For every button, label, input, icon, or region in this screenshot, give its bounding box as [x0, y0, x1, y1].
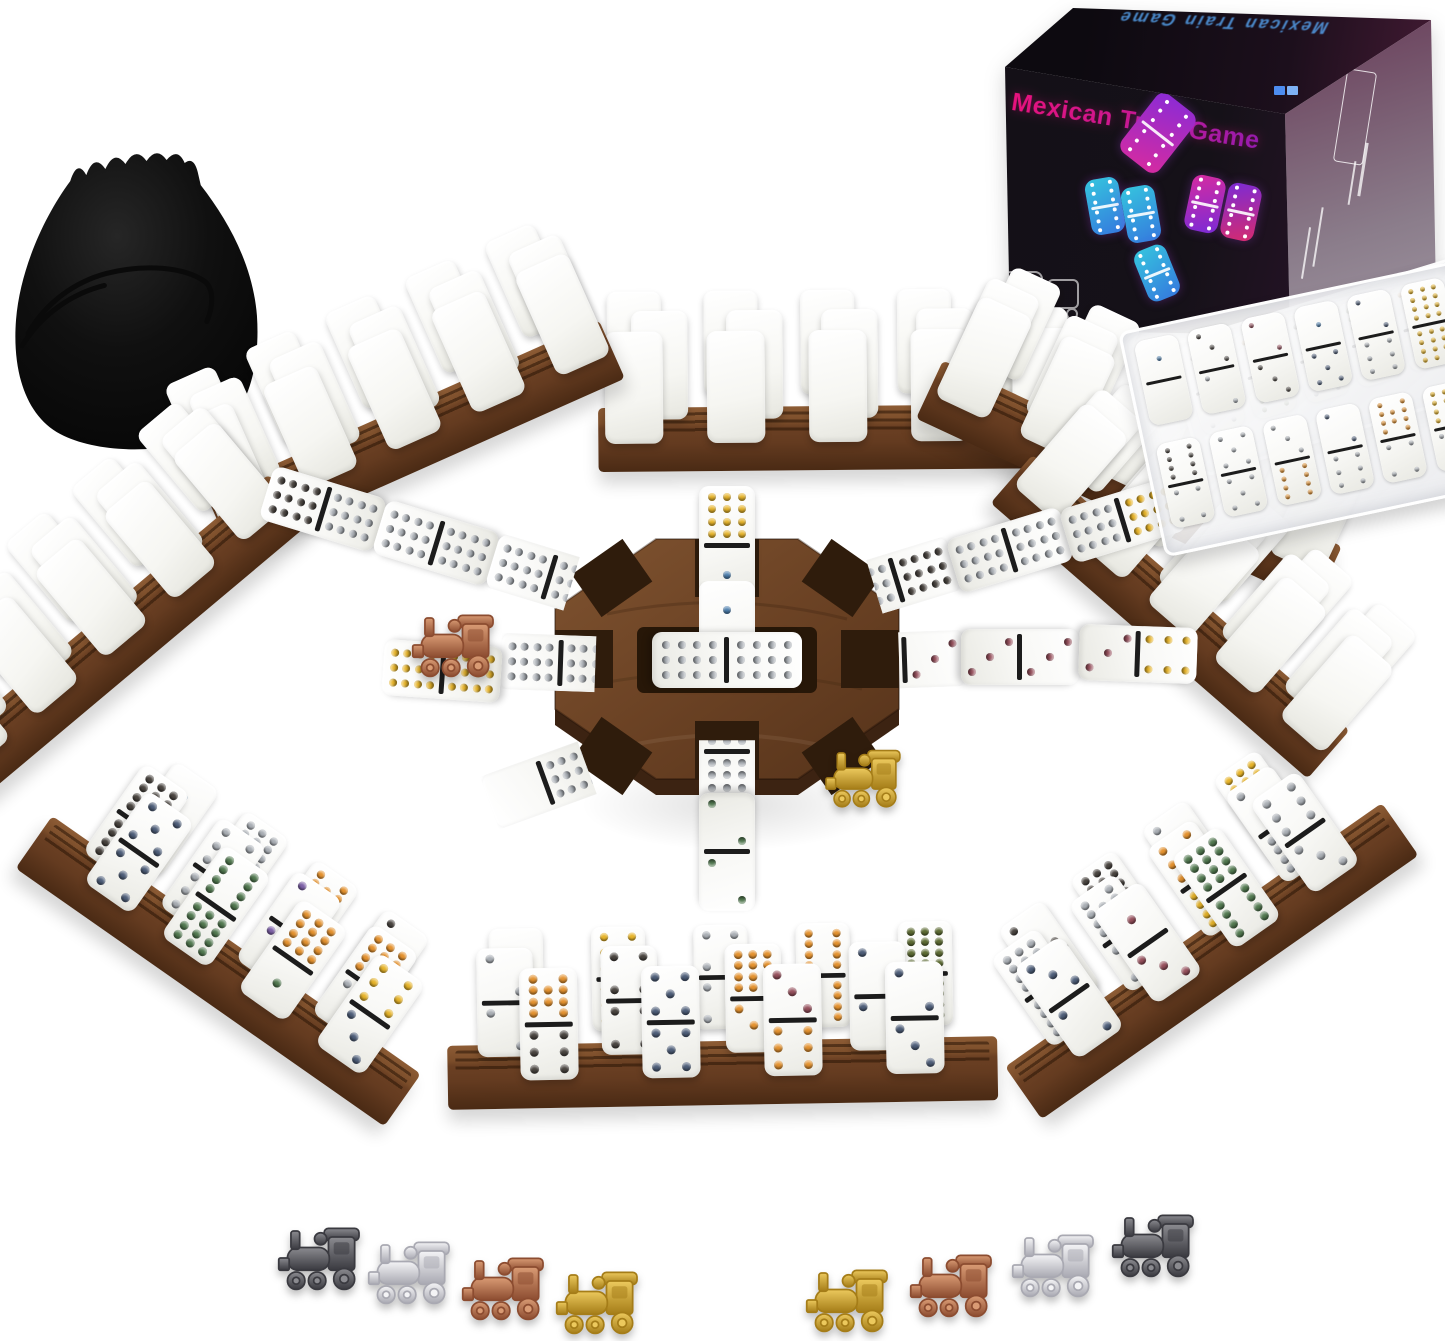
pip [784, 656, 792, 664]
domino-half [1302, 344, 1353, 390]
pip [1390, 409, 1396, 415]
domino-half [886, 1021, 945, 1071]
pip [1104, 649, 1112, 657]
pip [1129, 512, 1139, 522]
pip [730, 930, 739, 939]
pip [1214, 190, 1219, 195]
pip [1311, 354, 1317, 360]
pip [774, 1043, 783, 1052]
pip [662, 656, 670, 664]
pip [1298, 447, 1304, 453]
pip [1399, 398, 1405, 404]
pip [1143, 188, 1148, 193]
domino-half [1141, 626, 1195, 684]
pip [650, 972, 659, 981]
pip [1077, 543, 1087, 553]
pip [1412, 306, 1418, 312]
pip [1047, 968, 1060, 981]
pip [146, 800, 159, 813]
chain-upleft-mid [371, 499, 500, 587]
pip [555, 575, 565, 585]
pip [680, 972, 689, 981]
domino-5-5 [1208, 425, 1269, 518]
pip [528, 974, 537, 983]
pip [508, 672, 516, 680]
side-barcode-label [1333, 68, 1377, 166]
pip [773, 1026, 782, 1035]
pip [858, 948, 867, 957]
pip [768, 656, 776, 664]
pip [1157, 108, 1163, 114]
pip [1232, 397, 1238, 403]
pip [560, 1047, 569, 1056]
pip [1325, 364, 1331, 370]
pip [1249, 474, 1255, 480]
pip [926, 565, 936, 575]
pip [303, 515, 313, 525]
pip [340, 511, 350, 521]
pip [678, 656, 686, 664]
pip [1352, 435, 1358, 441]
pip [753, 671, 761, 679]
pip [1195, 334, 1201, 340]
pip [894, 968, 903, 977]
pip [544, 997, 553, 1006]
pip [738, 759, 746, 767]
pip [1315, 849, 1328, 862]
pip [300, 483, 310, 493]
pip [709, 671, 717, 679]
pip [1192, 469, 1198, 475]
pip [1333, 456, 1339, 462]
pip [559, 985, 568, 994]
domino-half [1125, 213, 1163, 243]
pip [458, 531, 468, 541]
pip [1182, 637, 1190, 645]
pip [1197, 186, 1202, 191]
pip [1091, 508, 1101, 518]
pip [1417, 331, 1423, 337]
pip [119, 892, 132, 905]
domino-divider [647, 1019, 695, 1025]
pip [708, 505, 716, 513]
pip [738, 505, 746, 513]
pip [1161, 262, 1166, 267]
pip [1391, 471, 1397, 477]
pip [381, 538, 391, 548]
pip [486, 1009, 495, 1018]
pip [803, 1004, 812, 1013]
pip [545, 658, 553, 666]
pip [1277, 344, 1283, 350]
pip [385, 918, 397, 930]
product-photo-scene: Mexican Train Game Mexican Train Game [0, 0, 1445, 1341]
pip [1191, 213, 1196, 218]
hub-center-domino [652, 632, 802, 688]
pip [220, 826, 232, 838]
pip [1338, 482, 1344, 488]
pip [1151, 825, 1163, 837]
train-marker-copper-on-chain [404, 606, 500, 684]
pip [1046, 517, 1056, 527]
domino-3-2 [1186, 322, 1247, 415]
domino-half [641, 969, 700, 1019]
domino-1-0 [1133, 333, 1194, 426]
pip [1240, 432, 1246, 438]
pip [1283, 485, 1289, 491]
pip [681, 1006, 690, 1015]
pip [446, 527, 456, 537]
pip [1169, 132, 1175, 138]
domino-back [429, 289, 528, 415]
pip [1144, 269, 1149, 274]
pip [481, 538, 491, 548]
pip [1421, 295, 1427, 301]
pip [911, 1041, 920, 1050]
pip [738, 493, 746, 501]
pip [753, 656, 761, 664]
pip [1337, 855, 1350, 868]
domino-3-8 [1261, 413, 1322, 506]
pip [117, 869, 130, 882]
pip [544, 986, 553, 995]
pip [1316, 322, 1322, 328]
domino-half [1377, 435, 1428, 481]
pip [1098, 228, 1103, 233]
pip [294, 917, 307, 930]
pip [185, 909, 198, 922]
pip [336, 525, 346, 535]
pip [978, 538, 988, 548]
box-art-domino [1083, 175, 1126, 236]
pip [919, 582, 929, 592]
pip [477, 552, 487, 562]
pip [914, 568, 924, 578]
pip [1086, 663, 1094, 671]
pip [1364, 342, 1370, 348]
pip [268, 504, 278, 514]
pip [1408, 440, 1414, 446]
pip [514, 548, 524, 558]
pip [1148, 279, 1153, 284]
pip [358, 990, 371, 1003]
pip [1207, 226, 1212, 231]
pip [1223, 355, 1229, 361]
pip [1023, 524, 1033, 534]
pip [678, 641, 686, 649]
pip [1421, 348, 1427, 354]
pip [510, 562, 520, 572]
pip [1168, 280, 1173, 285]
pip [748, 950, 757, 959]
pip [1212, 198, 1217, 203]
pip [1280, 826, 1293, 839]
pip [738, 837, 746, 845]
pip [1216, 181, 1221, 186]
pip [877, 564, 887, 574]
pip [1369, 368, 1375, 374]
pip [522, 565, 532, 575]
pip [784, 671, 792, 679]
domino-half [1143, 378, 1194, 424]
pip [1292, 844, 1305, 857]
pip [1430, 392, 1436, 398]
pip [1250, 198, 1255, 203]
pip [537, 555, 547, 565]
pip [494, 572, 504, 582]
pip [392, 993, 405, 1006]
pip [567, 659, 575, 667]
pip [465, 548, 475, 558]
pip [1115, 224, 1120, 229]
pip [1226, 479, 1232, 485]
pip [521, 643, 529, 651]
pip [1423, 357, 1429, 363]
pip [922, 551, 932, 561]
pip [885, 592, 895, 602]
pip [913, 670, 921, 678]
pip [580, 645, 588, 653]
pip [763, 950, 772, 959]
pip [389, 678, 398, 687]
pip [1114, 216, 1119, 221]
pip [1173, 490, 1179, 496]
pip [217, 863, 230, 876]
rack-bottom-right [961, 741, 1418, 1120]
pip [1146, 636, 1154, 644]
pip [693, 656, 701, 664]
train-marker-gold-right [798, 1261, 894, 1339]
pip [975, 569, 985, 579]
pip [1270, 426, 1276, 432]
pip [1134, 236, 1139, 241]
pip [1234, 927, 1247, 940]
pip [1240, 489, 1246, 495]
domino-divider [769, 1017, 817, 1023]
domino-half [1165, 481, 1216, 527]
pip [1008, 925, 1020, 937]
pip [1389, 350, 1395, 356]
pip [348, 1031, 361, 1044]
domino-half [1218, 469, 1269, 515]
pip [1158, 255, 1163, 260]
pip [723, 606, 731, 614]
pip [662, 641, 670, 649]
pip [114, 846, 127, 859]
pip [1157, 959, 1170, 972]
pip [291, 511, 301, 521]
pip [277, 476, 287, 486]
pip [1135, 954, 1148, 967]
pip [723, 759, 731, 767]
pip [530, 1065, 539, 1074]
domino-half [657, 632, 723, 688]
pip [1161, 143, 1167, 149]
domino-half [1400, 279, 1445, 325]
pip [935, 937, 944, 946]
pip [1164, 448, 1170, 454]
pip [933, 547, 943, 557]
pip [1235, 791, 1247, 803]
pip [832, 929, 841, 938]
pip [319, 935, 332, 948]
pip [533, 658, 541, 666]
pip [1419, 339, 1425, 345]
pip [413, 517, 423, 527]
pip [1243, 234, 1248, 239]
pip [1165, 272, 1170, 277]
pip [1217, 437, 1223, 443]
pip [788, 987, 797, 996]
domino-2-6 [1315, 402, 1376, 495]
pip [1279, 468, 1285, 474]
pip [768, 671, 776, 679]
pip [986, 653, 994, 661]
pip [1056, 1009, 1069, 1022]
pip [345, 497, 355, 507]
pip [1154, 247, 1159, 252]
pip [151, 846, 164, 859]
domino-half [763, 967, 822, 1017]
pip [472, 566, 482, 576]
pip [1166, 457, 1172, 463]
pip [352, 514, 362, 524]
pip [651, 1028, 660, 1037]
pip [1005, 638, 1013, 646]
pip [1146, 205, 1151, 210]
pip [244, 843, 256, 855]
pip [1227, 221, 1232, 226]
pip [1430, 337, 1436, 343]
pip [1435, 418, 1441, 424]
pip [1096, 219, 1101, 224]
pip [306, 926, 319, 939]
pip [1125, 913, 1138, 926]
pip [1128, 199, 1133, 204]
pip [1032, 552, 1042, 562]
pip [772, 970, 781, 979]
side-print-line [1348, 161, 1357, 205]
pip [804, 1060, 813, 1069]
pip [1151, 232, 1156, 237]
pip [551, 589, 561, 599]
pip [708, 784, 716, 792]
pip [1187, 443, 1193, 449]
pip [1284, 436, 1290, 442]
pip [453, 545, 463, 555]
domino-divider [704, 750, 750, 755]
domino-half [699, 856, 755, 908]
pip [1170, 474, 1176, 480]
pip [967, 542, 977, 552]
pip [305, 954, 318, 967]
pip [329, 507, 339, 517]
pip [1439, 326, 1445, 332]
domino-12-12 [1399, 277, 1445, 370]
pip [567, 674, 575, 682]
pip [737, 671, 745, 679]
pip [1164, 99, 1170, 105]
pip [600, 933, 609, 942]
pip [1141, 128, 1147, 134]
pip [1270, 812, 1283, 825]
pip [1225, 230, 1230, 235]
pip [1111, 532, 1121, 542]
pip [708, 518, 716, 526]
pip [1027, 668, 1035, 676]
pip [1046, 653, 1054, 661]
pip [1386, 445, 1392, 451]
pip [1434, 355, 1440, 361]
pip [573, 766, 583, 776]
pip [1190, 461, 1196, 467]
pip [533, 644, 541, 652]
pip [578, 779, 588, 789]
pip [1235, 186, 1240, 191]
pip [529, 1009, 538, 1018]
pip [1171, 287, 1176, 292]
pip [1441, 389, 1445, 395]
pip [1035, 521, 1045, 531]
domino-half [1430, 424, 1445, 470]
pip [1305, 809, 1318, 822]
domino-1-5 [1293, 299, 1354, 392]
pip [1145, 522, 1155, 532]
pip [401, 514, 411, 524]
domino-half [885, 964, 944, 1014]
pip [149, 823, 162, 836]
pip [1428, 329, 1434, 335]
pip [1069, 974, 1082, 987]
pip [666, 989, 675, 998]
pip [127, 829, 140, 842]
pip [628, 932, 637, 941]
pip [204, 882, 217, 895]
pip [1193, 205, 1198, 210]
pip [907, 949, 916, 958]
train-marker-gunmetal-right [1104, 1206, 1200, 1284]
domino-10-6 [519, 968, 579, 1081]
pip [738, 518, 746, 526]
pip [1183, 114, 1189, 120]
pip [377, 962, 390, 975]
pip [971, 555, 981, 565]
pip [1012, 528, 1022, 538]
pip [1133, 526, 1143, 536]
domino-half [699, 585, 755, 637]
pip [682, 1062, 691, 1071]
pip [1419, 287, 1425, 293]
pip [983, 552, 993, 562]
pip [1380, 420, 1386, 426]
pip [1201, 881, 1214, 894]
pip [350, 1053, 363, 1066]
pip [1201, 511, 1207, 517]
domino-half [1082, 624, 1136, 682]
pip [1249, 323, 1255, 329]
pip [1436, 310, 1442, 316]
pip [1140, 508, 1150, 518]
domino-half [504, 633, 558, 691]
pip [609, 952, 618, 961]
pip [1039, 535, 1049, 545]
pip [280, 507, 290, 517]
pip [1245, 458, 1251, 464]
domino-half [965, 629, 1017, 685]
pip [1204, 376, 1210, 382]
pip [1195, 195, 1200, 200]
pip [1244, 225, 1249, 230]
